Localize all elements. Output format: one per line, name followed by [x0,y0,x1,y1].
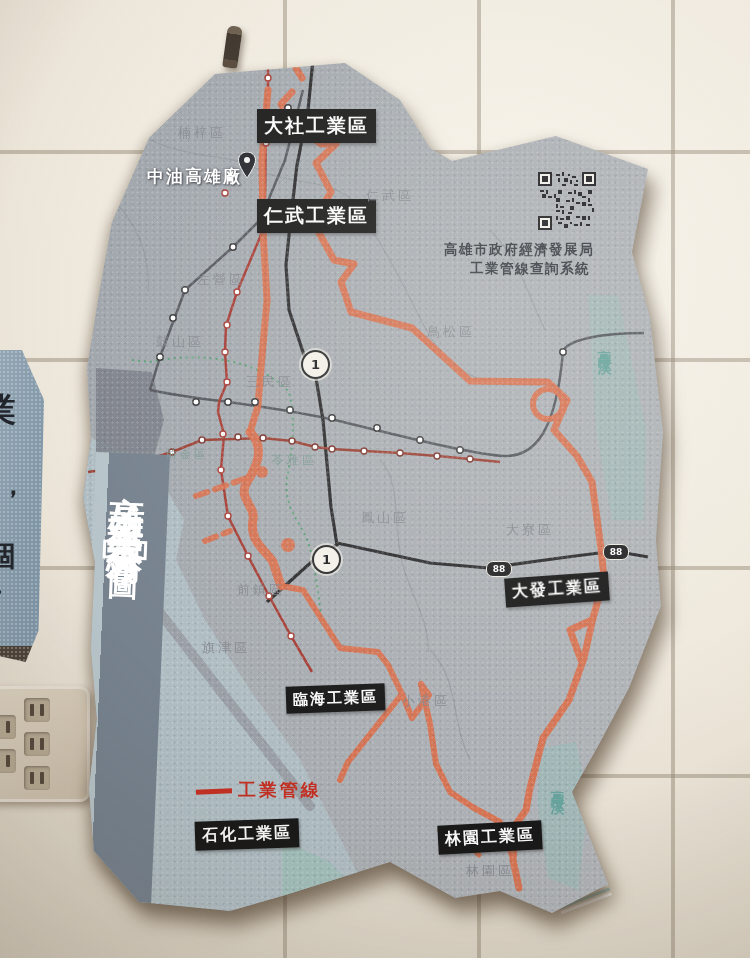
district-fengshan: 鳳山區 [361,509,409,527]
label-renwu-industrial-park: 仁武工業區 [257,199,376,233]
district-lingya: 苓雅區 [272,452,317,469]
expressway-88-shield: 88 [486,561,512,577]
river-gaoping-upper: 高屏溪 [596,338,614,353]
label-linyuan-industrial-park: 林園工業區 [437,820,542,854]
poster-title-boxed-char: 圖 [103,539,148,560]
poster-shadow-wrap: 高雄市工業管線分布圖 大社工業區 仁武工業區 大發工業區 臨海工業區 石化工業區… [0,0,750,958]
district-niaosong: 鳥松區 [427,323,475,341]
pipeline-map-poster: 高雄市工業管線分布圖 大社工業區 仁武工業區 大發工業區 臨海工業區 石化工業區… [0,0,750,958]
photo-stage: 業 ， 個 。 [0,0,750,958]
poster-title: 高雄市工業管線分布圖 [107,467,147,560]
qr-code [538,172,596,230]
district-xiaogang: 小港區 [402,692,450,710]
district-nanzi: 楠梓區 [178,124,226,142]
qr-caption-bureau: 高雄市政府經濟發展局 [444,241,594,259]
poster-title-text: 高雄市工業管線分布 [106,467,150,532]
highway-1-shield: 1 [301,350,330,379]
location-pin-icon [238,152,256,178]
label-petrochemical-industrial-park: 石化工業區 [195,818,300,851]
district-sanmin: 三民區 [246,373,294,391]
district-qianzhen: 前鎮區 [237,581,285,599]
district-gushan: 鼓山區 [156,333,204,351]
legend-pipeline-label: 工業管線 [238,778,322,802]
qr-caption-system: 工業管線查詢系統 [470,260,590,278]
label-cpc-kaohsiung-refinery: 中油高雄廠 [147,165,242,188]
district-qijin: 旗津區 [202,639,250,657]
river-gaoping-lower: 高屏溪 [549,778,567,793]
district-zuoying: 左營區 [197,271,245,289]
district-linyuan: 林園區 [466,862,514,880]
label-dashe-industrial-park: 大社工業區 [257,109,376,143]
expressway-88-shield: 88 [603,544,629,560]
label-linhai-industrial-park: 臨海工業區 [286,683,386,713]
district-qianjin: 前金區 [166,447,208,462]
district-daliao: 大寮區 [506,521,554,539]
district-renwu: 仁武區 [366,187,414,205]
highway-1-shield: 1 [312,545,341,574]
